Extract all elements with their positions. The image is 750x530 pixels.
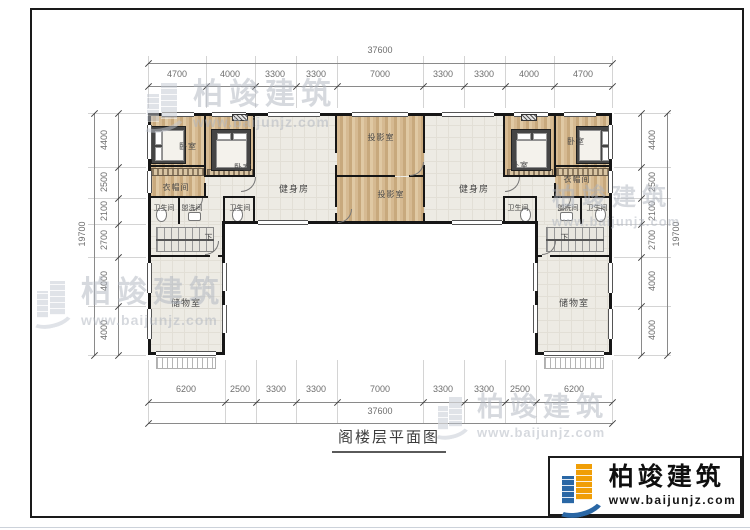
dim-label: 4700 bbox=[561, 68, 605, 80]
window bbox=[268, 112, 320, 117]
room-label: 卧室 bbox=[160, 141, 216, 152]
room-label: 储物室 bbox=[158, 296, 214, 309]
dim-label: 2700 bbox=[646, 218, 658, 262]
room-label: 卫生间 bbox=[569, 203, 625, 213]
dim-label: 3300 bbox=[421, 383, 465, 395]
dim-label: 4000 bbox=[98, 308, 110, 352]
window bbox=[222, 263, 227, 291]
extension-line bbox=[148, 360, 149, 424]
dim-label: 37600 bbox=[358, 405, 402, 417]
dim-label: 3300 bbox=[254, 383, 298, 395]
window bbox=[533, 263, 538, 291]
window bbox=[147, 263, 152, 293]
dim-label: 6200 bbox=[552, 383, 596, 395]
wall bbox=[550, 255, 612, 257]
dim-label: 2500 bbox=[498, 383, 542, 395]
wall bbox=[423, 165, 425, 207]
extension-line bbox=[612, 360, 613, 424]
room-label: 卫生间 bbox=[212, 203, 268, 213]
room-label: 卧室 bbox=[492, 160, 548, 171]
dim-label: 4400 bbox=[646, 118, 658, 162]
window bbox=[222, 305, 227, 333]
window bbox=[608, 125, 613, 159]
dim-label: 3300 bbox=[253, 68, 297, 80]
wall bbox=[218, 255, 225, 257]
company-name: 柏竣建筑 bbox=[609, 465, 737, 490]
window bbox=[564, 112, 596, 117]
stairs-down-label: 下 bbox=[181, 232, 237, 243]
dim-label: 6200 bbox=[164, 383, 208, 395]
dim-label: 7000 bbox=[358, 68, 402, 80]
wall bbox=[505, 196, 537, 198]
dim-label: 3300 bbox=[294, 383, 338, 395]
wall bbox=[223, 196, 255, 198]
dimension-line bbox=[148, 86, 612, 87]
window bbox=[147, 125, 152, 159]
sink bbox=[560, 212, 573, 221]
window bbox=[544, 351, 604, 356]
dimension-line bbox=[641, 113, 642, 355]
company-url: www.baijunjz.com bbox=[609, 493, 737, 507]
exterior-steps bbox=[544, 357, 604, 369]
wall bbox=[423, 113, 425, 153]
room-label: 衣帽间 bbox=[549, 174, 605, 185]
dim-label: 3300 bbox=[462, 68, 506, 80]
dim-label: 19700 bbox=[670, 212, 682, 256]
wall bbox=[423, 213, 425, 221]
window bbox=[608, 171, 613, 193]
window bbox=[533, 305, 538, 333]
exterior-steps bbox=[156, 357, 216, 369]
dim-label: 4000 bbox=[646, 308, 658, 352]
dim-label: 2700 bbox=[98, 218, 110, 262]
dim-label: 4000 bbox=[98, 259, 110, 303]
room-label: 健身房 bbox=[266, 182, 322, 195]
wall bbox=[335, 213, 337, 221]
wall bbox=[148, 255, 210, 257]
room-label: 健身房 bbox=[446, 182, 502, 195]
dimension-line bbox=[148, 423, 612, 424]
dim-label: 19700 bbox=[76, 212, 88, 256]
vent-shaft bbox=[232, 114, 248, 121]
dim-label: 4000 bbox=[507, 68, 551, 80]
dim-label: 7000 bbox=[358, 383, 402, 395]
drawing-title: 阁楼层平面图 bbox=[332, 426, 446, 453]
window bbox=[452, 220, 502, 225]
wall bbox=[335, 165, 337, 207]
wardrobe bbox=[151, 168, 204, 176]
dimension-line bbox=[148, 402, 612, 403]
company-logo-icon bbox=[554, 462, 600, 510]
dim-label: 4000 bbox=[208, 68, 252, 80]
wall bbox=[148, 165, 206, 167]
dim-label: 4700 bbox=[155, 68, 199, 80]
window bbox=[156, 351, 216, 356]
window-bottom-edge bbox=[0, 527, 750, 528]
wall bbox=[554, 165, 612, 167]
sink bbox=[188, 212, 201, 221]
window bbox=[162, 112, 194, 117]
dim-label: 4000 bbox=[646, 259, 658, 303]
stairs-down-label: 下 bbox=[537, 232, 593, 243]
dimension-line bbox=[667, 113, 668, 355]
dim-label: 37600 bbox=[358, 44, 402, 56]
dim-label: 4400 bbox=[98, 118, 110, 162]
room-label: 衣帽间 bbox=[148, 182, 204, 193]
window bbox=[258, 220, 308, 225]
dimension-line bbox=[148, 63, 612, 64]
room-label: 投影室 bbox=[363, 189, 419, 200]
window bbox=[608, 263, 613, 293]
dimension-line bbox=[94, 113, 95, 355]
wall bbox=[337, 175, 395, 177]
floor-plan: 卧室 卧室 衣帽间 卫生间 盥洗间 卫生间 健身房 投影室 投影室 健身房 卧室… bbox=[148, 113, 612, 355]
room-label: 投影室 bbox=[353, 132, 409, 143]
window bbox=[147, 309, 152, 339]
drawing-sheet: 柏竣建筑 www.baijunjz.com 柏竣建筑 www.baijunjz.… bbox=[0, 0, 750, 530]
window bbox=[442, 112, 494, 117]
window bbox=[352, 112, 408, 117]
dimension-line bbox=[118, 113, 119, 355]
company-logo: 柏竣建筑 www.baijunjz.com bbox=[548, 456, 742, 516]
wall bbox=[535, 255, 542, 257]
dim-label: 3300 bbox=[294, 68, 338, 80]
room-label: 卧室 bbox=[215, 162, 271, 173]
window bbox=[608, 309, 613, 339]
vent-shaft bbox=[521, 114, 537, 121]
dim-label: 3300 bbox=[421, 68, 465, 80]
room-label: 储物室 bbox=[546, 296, 602, 309]
room-label: 卫生间 bbox=[490, 203, 546, 213]
room-label: 卧室 bbox=[548, 136, 604, 147]
wall bbox=[335, 113, 337, 153]
